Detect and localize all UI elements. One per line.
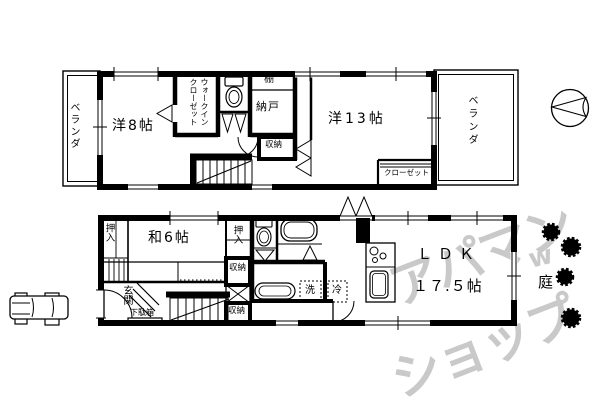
car-icon — [10, 293, 68, 325]
inner-walls-1f — [104, 218, 333, 303]
stairs-icon — [166, 292, 230, 322]
kitchen-sink-icon — [370, 271, 388, 298]
tree-icon — [563, 310, 580, 327]
compass-icon — [552, 90, 589, 127]
label-fridge: 冷 — [332, 285, 342, 296]
label-shoe-cabinet: 下駄箱 — [130, 309, 154, 318]
label-ldk: ＬＤＫ — [417, 246, 480, 263]
stairs-icon — [190, 154, 252, 186]
label-storage-upper: 収納 — [229, 264, 246, 273]
label-oshiire-left: 押入 — [103, 223, 113, 259]
terrace-door-swing — [340, 197, 372, 216]
label-balcony-right-2f: ベランダ — [466, 95, 477, 159]
ldk-door — [333, 301, 354, 322]
label-ldk-size: １７.５帖 — [413, 278, 483, 295]
label-storage-lower: 収納 — [228, 307, 245, 316]
bathtub-icon — [277, 219, 322, 260]
label-japanese-room: 和6帖 — [148, 231, 191, 246]
label-closet-2f: クローゼット — [384, 169, 429, 177]
floor-plan-image: アパマン ショップ w — [0, 0, 600, 400]
door-swing-icon — [157, 105, 311, 176]
watermark: アパマン ショップ w — [382, 195, 586, 400]
tree-icon — [544, 225, 559, 240]
toilet-icon — [252, 219, 277, 261]
label-storage-room: 納戸 — [256, 101, 280, 113]
label-garden: 庭 — [538, 274, 553, 291]
tree-icon — [563, 239, 580, 256]
label-walk-in-closet: ウォークインクローゼット — [186, 78, 210, 132]
label-room8: 洋8帖 — [112, 119, 155, 134]
floor-plan-linework: アパマン ショップ w — [0, 0, 600, 400]
washbasin-icon — [255, 283, 295, 299]
label-washer: 洗 — [305, 285, 315, 296]
label-storage-2f: 収納 — [265, 141, 282, 150]
label-room13: 洋13帖 — [328, 112, 386, 127]
label-balcony-left-2f: ベランダ — [68, 102, 79, 164]
toilet-icon — [225, 77, 243, 107]
stove-icon — [370, 247, 386, 263]
tree-icon — [558, 270, 573, 285]
label-shelf: 棚 — [264, 74, 274, 85]
label-oshiire-right: 押入 — [231, 225, 241, 261]
